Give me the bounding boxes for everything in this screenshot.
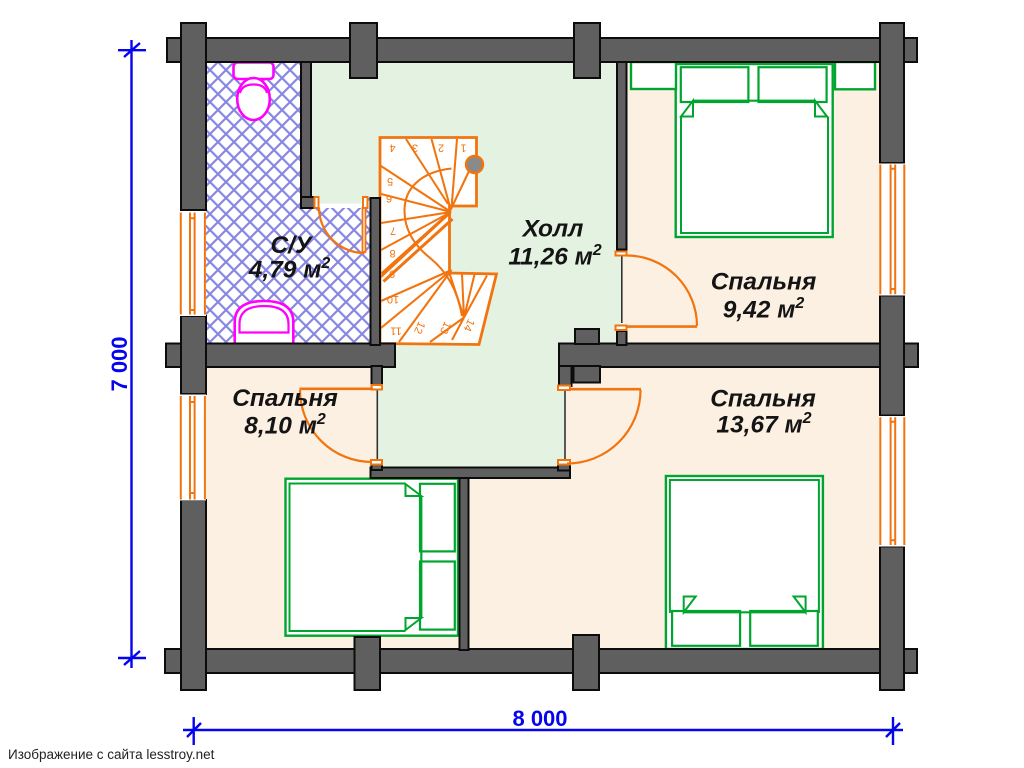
svg-text:4: 4 [389, 142, 395, 154]
svg-text:Холл: Холл [521, 216, 584, 243]
svg-text:6: 6 [386, 192, 392, 204]
svg-text:8: 8 [389, 247, 395, 259]
svg-text:3: 3 [412, 142, 418, 154]
svg-text:10: 10 [387, 293, 399, 305]
svg-text:9: 9 [389, 268, 395, 280]
svg-text:4,79 м2: 4,79 м2 [248, 255, 331, 284]
svg-text:11,26 м2: 11,26 м2 [508, 242, 601, 271]
svg-text:Спальня: Спальня [710, 386, 816, 413]
svg-text:7: 7 [390, 225, 396, 237]
svg-text:8,10 м2: 8,10 м2 [244, 411, 326, 440]
svg-text:13,67 м2: 13,67 м2 [716, 410, 811, 439]
svg-text:Спальня: Спальня [232, 385, 338, 412]
svg-text:7 000: 7 000 [107, 336, 132, 391]
svg-text:9,42 м2: 9,42 м2 [723, 295, 805, 324]
svg-text:2: 2 [438, 142, 444, 154]
svg-text:Изображение с сайта lesstroy.n: Изображение с сайта lesstroy.net [8, 747, 215, 762]
svg-text:С/У: С/У [270, 232, 314, 259]
svg-text:5: 5 [387, 175, 393, 187]
svg-text:Спальня: Спальня [711, 269, 817, 296]
svg-text:8 000: 8 000 [512, 706, 567, 731]
svg-text:1: 1 [460, 142, 466, 154]
svg-text:11: 11 [390, 325, 401, 337]
